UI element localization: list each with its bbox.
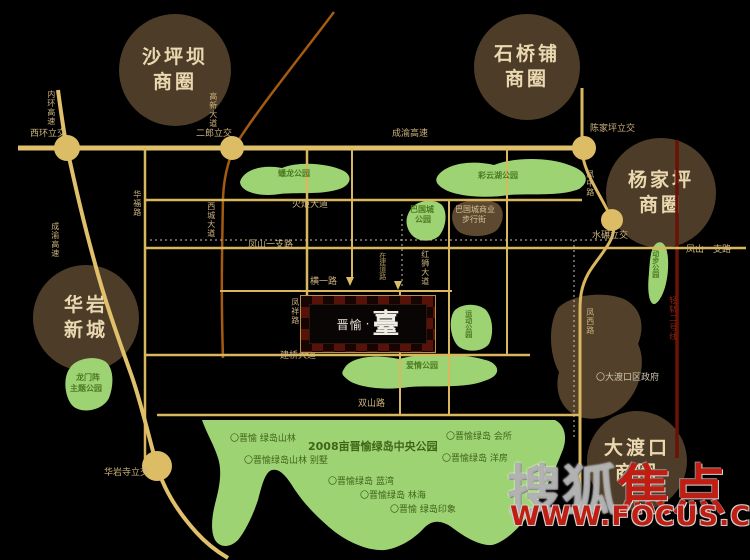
map-label: 二郎立交 (196, 130, 232, 140)
map-label: 水碾立交 (592, 232, 628, 242)
map-label: 2008亩晋愉绿岛中央公园 (308, 441, 438, 453)
map-label: 〇晋愉 绿岛印象 (390, 506, 456, 516)
map-label: 内环高速 (46, 90, 55, 126)
map-label: 公园 (415, 216, 431, 225)
map-label: 〇晋愉绿岛 蓝湾 (328, 478, 394, 488)
map-label: 在建道路 (378, 252, 386, 280)
map-label: 彩云湖公园 (478, 172, 518, 181)
map-label: 凤山一支路 (686, 246, 731, 256)
map-label: 蟠龙公园 (278, 170, 310, 179)
district-bubble-shiqiaopu: 石桥铺 商圈 (474, 14, 580, 120)
map-label: 凤山一支路 (248, 241, 293, 251)
map-label: 陈家坪立交 (590, 125, 635, 135)
park-shapes (65, 159, 668, 410)
district-label: 商圈 (153, 70, 197, 95)
map-label: 西城大道 (206, 202, 215, 238)
project-logo-inner: 晋愉 · 臺 (309, 304, 427, 344)
map-label: 高新大道 (208, 92, 217, 128)
map-label: 火炬大道 (292, 201, 328, 211)
map-label: 运动公园 (464, 310, 472, 338)
map-label: 凤西路 (585, 308, 594, 335)
map-label: 主题公园 (70, 385, 102, 394)
map-label: 〇大渡口区政府 (596, 374, 659, 384)
map-label: 华福路 (132, 190, 141, 217)
map-label: 红狮大道 (420, 250, 429, 286)
district-label: 华岩 (64, 293, 108, 318)
district-label: 石桥铺 (494, 42, 560, 67)
project-brand: 晋愉 (337, 316, 363, 333)
map-label: 龙门阵 (76, 374, 100, 383)
location-map: 沙坪坝 商圈 石桥铺 商圈 杨家坪 商圈 华岩 新城 大渡口 商圈 (0, 0, 750, 560)
map-label: 西环立交 (30, 130, 66, 140)
map-label: 凤中路 (585, 170, 594, 197)
district-label: 商圈 (505, 67, 549, 92)
district-label: 沙坪坝 (142, 45, 208, 70)
project-brand-dot: · (366, 317, 370, 331)
map-label: 〇晋愉绿岛山林 别墅 (244, 457, 328, 467)
district-bubble-huayan: 华岩 新城 (33, 265, 139, 371)
map-label: 爱情公园 (406, 362, 438, 371)
district-label: 新城 (64, 318, 108, 343)
map-label: 轻轨二号线 (668, 296, 677, 341)
map-label: 巴国城 (410, 206, 434, 215)
map-label: 〇晋愉绿岛 洋房 (442, 455, 508, 465)
watermark-url: WWW.FOCUS.CN (510, 501, 750, 532)
district-label: 杨家坪 (628, 168, 694, 193)
district-label: 商圈 (639, 193, 683, 218)
map-label: 巴国城商业 (455, 206, 495, 215)
map-label: 动步公园 (651, 250, 659, 278)
map-label: 建桥大道 (280, 352, 316, 362)
map-label: 双山路 (358, 400, 385, 410)
construction-arrow-icon (346, 277, 402, 290)
project-name-glyph: 臺 (372, 311, 399, 338)
map-label: 凤祥路 (290, 298, 299, 325)
map-label: 成渝高速 (50, 222, 59, 258)
map-label: 成渝高速 (392, 130, 428, 140)
map-label: 〇晋愉 绿岛山林 (230, 435, 296, 445)
map-label: 华岩寺立交 (104, 469, 149, 479)
map-label: 横一路 (310, 278, 337, 288)
map-label: 〇晋愉绿岛 会所 (446, 433, 512, 443)
map-label: 〇晋愉绿岛 林海 (360, 492, 426, 502)
map-label: 步行街 (462, 216, 486, 225)
project-logo-block: 晋愉 · 臺 (300, 295, 436, 353)
